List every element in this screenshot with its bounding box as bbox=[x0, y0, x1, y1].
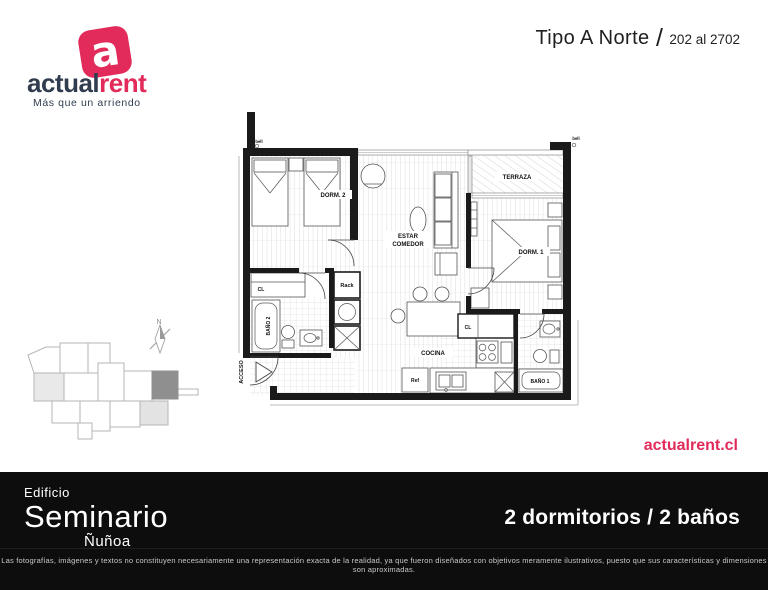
room-label-terraza: TERRAZA bbox=[503, 175, 532, 181]
room-label-rack: Rack bbox=[340, 283, 354, 289]
terraza-divider bbox=[468, 156, 472, 193]
building-name: Seminario bbox=[24, 500, 168, 533]
room-label-cocina: COCINA bbox=[421, 351, 445, 357]
footer-divider bbox=[0, 548, 768, 549]
bell-left-icon bbox=[255, 144, 259, 148]
building-label: Edificio bbox=[24, 485, 168, 500]
title-separator: / bbox=[654, 24, 665, 52]
unit-range-label: 202 al 2702 bbox=[669, 32, 740, 47]
actualrent-logo: a actualrent Más que un arriendo bbox=[24, 16, 204, 108]
brand-rent: rent bbox=[99, 68, 146, 98]
room-label-cl-right: CL bbox=[465, 325, 472, 331]
room-label-dorm2: DORM. 2 bbox=[320, 193, 346, 199]
room-label-bano2: BAÑO 2 bbox=[265, 316, 272, 335]
room-label-acceso: ACCESO bbox=[239, 360, 245, 384]
lounge-chair bbox=[361, 164, 385, 188]
building-block: Edificio Seminario Ñuñoa bbox=[24, 485, 168, 550]
dining-chair bbox=[413, 287, 427, 301]
website-link[interactable]: actualrent.cl bbox=[644, 437, 738, 455]
room-label-bell-right: bell bbox=[572, 136, 579, 141]
bath2-toilet bbox=[282, 326, 295, 339]
room-label-bano1: BAÑO 1 bbox=[531, 378, 550, 385]
keyplan-highlighted-unit bbox=[152, 371, 178, 399]
logo-tagline: Más que un arriendo bbox=[33, 97, 141, 109]
room-label-estar: ESTAR bbox=[398, 234, 419, 240]
footer-bar: Edificio Seminario Ñuñoa 2 dormitorios /… bbox=[0, 472, 768, 590]
dining-chair bbox=[391, 309, 405, 323]
room-label-cl-left: CL bbox=[258, 287, 265, 293]
dorm1-nightstand bbox=[548, 203, 562, 217]
logo-wordmark: actualrent bbox=[27, 68, 146, 99]
closet-left bbox=[251, 273, 305, 297]
room-label-comedor: COMEDOR bbox=[392, 242, 424, 248]
room-label-ref: Ref bbox=[411, 378, 419, 384]
floor-plan: bell bell DORM. 2 TERRAZA ESTAR COMEDOR … bbox=[230, 110, 600, 420]
disclaimer-text: Las fotografías, imágenes y textos no co… bbox=[0, 556, 768, 574]
brand-actual: actual bbox=[27, 68, 99, 98]
dorm1-nightstand bbox=[548, 285, 562, 299]
dining-chair bbox=[435, 287, 449, 301]
features-label: 2 dormitorios / 2 baños bbox=[504, 506, 740, 530]
oven bbox=[501, 342, 512, 363]
plan-title: Tipo A Norte / 202 al 2702 bbox=[535, 24, 740, 53]
room-label-dorm1: DORM. 1 bbox=[518, 250, 544, 256]
dorm2-nightstand bbox=[289, 158, 303, 171]
room-label-bell-left: bell bbox=[255, 139, 262, 144]
compass: N bbox=[150, 319, 170, 353]
unit-type-label: Tipo A Norte bbox=[535, 27, 649, 49]
side-table bbox=[410, 207, 426, 233]
bell-right-icon bbox=[572, 143, 576, 147]
north-label: N bbox=[156, 319, 161, 326]
bath1-toilet bbox=[534, 350, 547, 363]
dining-table bbox=[407, 302, 460, 336]
flyer-page: a actualrent Más que un arriendo Tipo A … bbox=[0, 0, 768, 590]
armchair bbox=[435, 253, 457, 275]
key-plan: N bbox=[22, 315, 207, 440]
